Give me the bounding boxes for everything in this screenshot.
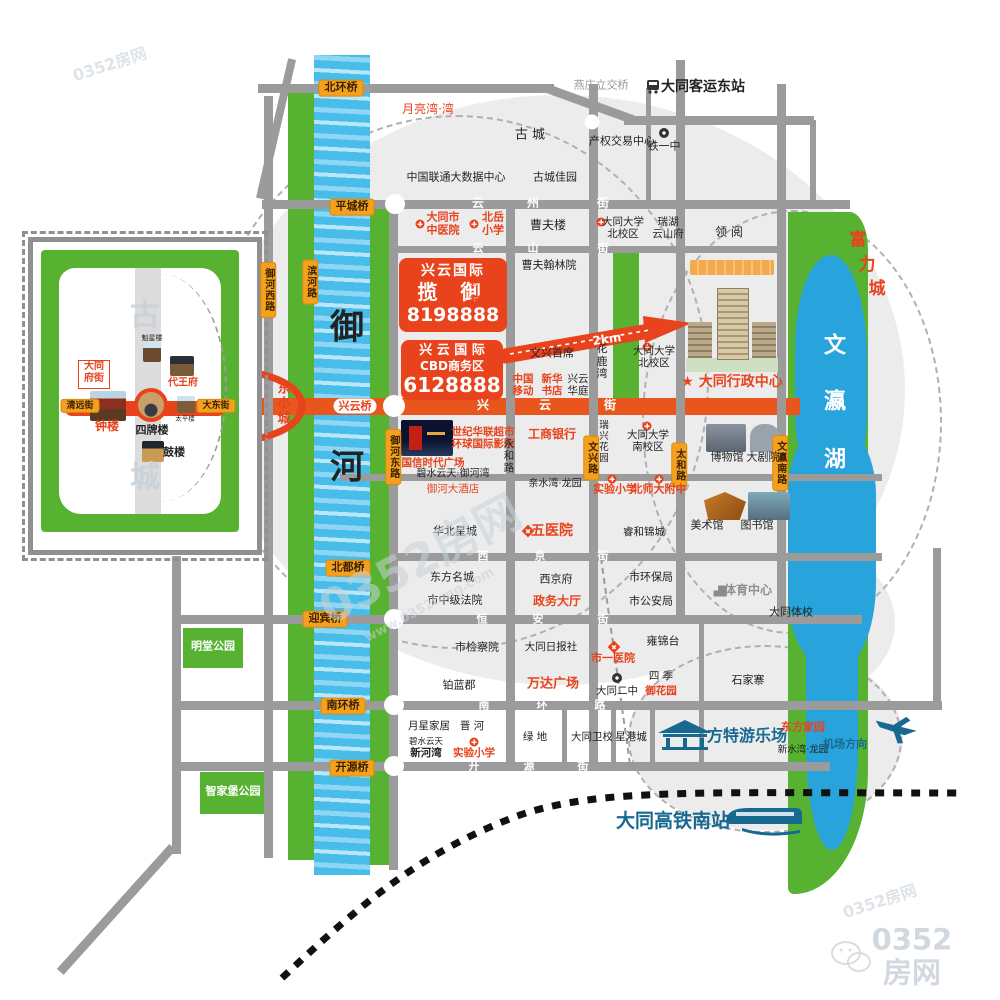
road-binhe: 滨河路 — [302, 260, 318, 305]
label-xinggangcheng: 星港城 — [615, 731, 647, 743]
label-yanzhuang-interchange: 燕庄立交桥 — [574, 80, 629, 93]
label-yueliangwan: 月亮湾·湾 — [402, 103, 454, 117]
label-xinhewan: 新河湾 — [410, 747, 442, 759]
cbd-name: CBD商务区 — [401, 359, 503, 373]
cbd-brand: 兴 云 国 际 — [401, 343, 503, 359]
label-yuhuayuan: 御花园 — [645, 685, 677, 697]
label-china-mobile: 中国 移动 — [513, 373, 534, 397]
label-xijingfu: 西京府 — [540, 574, 573, 587]
map-label: 力 — [859, 256, 876, 276]
label-tcm-hospital: 大同市 中医院 — [427, 211, 460, 236]
label-shijiazhai: 石家寨 — [732, 675, 765, 688]
inset-sipailou: 四牌楼 — [136, 425, 169, 438]
label-wanda-plaza: 万达广场 — [527, 678, 579, 693]
taipinglou-photo — [177, 396, 195, 413]
label-yuhe-down: 河 — [330, 448, 364, 487]
admin-center-photo — [686, 282, 778, 372]
label-dongfangjiayuan: 东方家园 — [781, 722, 825, 735]
map-label: 南 — [479, 700, 490, 713]
label-fangte-park: 方特游乐场 — [707, 727, 787, 745]
map-label: 城 — [130, 461, 160, 496]
map-label: 街 — [598, 614, 609, 627]
road-junction — [384, 695, 404, 715]
label-admin-center: ★ 大同行政中心 — [681, 374, 782, 390]
dark-icon — [659, 128, 669, 138]
kuixinglou-photo — [143, 342, 161, 362]
label-art-gallery: 美术馆 — [691, 520, 724, 533]
label-no2-middle: 大同二中 — [596, 685, 638, 697]
museum-photo — [706, 424, 746, 452]
inset-dadong-street: 大东街 — [196, 399, 235, 413]
map-label: 街 — [578, 761, 589, 774]
label-sports-school: 大同体校 — [769, 607, 813, 620]
label-first-hospital: 市一医院 — [591, 653, 635, 666]
label-qinshuiwan: 亲水湾·龙园 — [528, 478, 581, 490]
label-fifth-hospital: 五医院 — [531, 523, 573, 539]
inset-qingyuan-street: 清远街 — [60, 399, 99, 413]
map-label: 街 — [604, 399, 616, 413]
inset-kuixinglou: 魁星楼 — [142, 334, 163, 342]
map-canvas: 大同 府街 兴云国际 揽 御 8198888 碧水云天 御河苑 兴 云 国 际 … — [0, 0, 1000, 1000]
label-ruixing-garden: 瑞 兴 花 园 — [599, 421, 609, 465]
footer-logo-text: 0352房网 — [868, 924, 956, 991]
label-daily-press: 大同日报社 — [525, 641, 578, 653]
map-label: 瀛 — [824, 389, 846, 414]
label-lvdi: 绿 地 — [523, 731, 547, 743]
cbd-promo-card: 兴 云 国 际 CBD商务区 6128888 — [401, 340, 503, 400]
map-label: 安 — [533, 614, 544, 627]
label-epa: 市环保局 — [629, 572, 673, 585]
bridge-pingchengqiao: 平城桥 — [330, 199, 375, 216]
label-procuratorate: 市检察院 — [455, 642, 499, 655]
label-bishuiyuntian-yuhewan: 碧水云天·御河湾 — [416, 468, 489, 480]
label-hsr-south-station: 大同高铁南站 — [616, 811, 730, 833]
label-east-bus-station: 大同客运东站 — [661, 79, 745, 95]
map-label: 街 — [598, 243, 609, 256]
road-junction — [385, 194, 405, 214]
map-label: 州 — [527, 197, 539, 211]
bridge-nanhuanqiao: 南环桥 — [321, 698, 366, 715]
label-airport-direction: 机场方向 — [823, 739, 867, 752]
label-ruihu-yunshanfu: 瑞湖 云山府 — [652, 216, 684, 240]
label-beiyue-primary: 北岳 小学 — [482, 211, 504, 236]
map-label: 云 — [472, 197, 484, 211]
inset-zhonglou: 钟楼 — [95, 420, 119, 434]
map-label: 湖 — [824, 447, 846, 472]
label-wenxingshouxi: 文兴首席 — [530, 348, 574, 361]
bridge-beihuanqiao: 北环桥 — [319, 80, 364, 97]
label-hualuwan: 花 鹿 湾 — [597, 343, 608, 381]
road-taihe: 太和路 — [671, 443, 687, 488]
label-jinhe: 晋 河 — [460, 720, 484, 732]
map-label: 京 — [535, 551, 546, 564]
road-junction — [585, 115, 600, 130]
label-mingtang-park: 明堂公园 — [191, 641, 235, 654]
label-experimental-primary1: 实验小学 — [593, 484, 637, 497]
inset-gulou: 鼓楼 — [163, 447, 185, 460]
airplane-icon — [872, 712, 918, 746]
label-zhijiabu-park: 智家堡公园 — [206, 786, 261, 799]
label-ruihejincheng: 睿和锦城 — [623, 526, 665, 538]
hospital-icon — [416, 220, 425, 229]
label-gucheng: 古 城 — [515, 129, 545, 144]
map-label: 城 — [869, 280, 886, 300]
label-yuexing-furniture: 月星家居 — [408, 720, 450, 732]
label-xinshuiwan: 新水湾·龙园 — [778, 746, 829, 757]
label-xinhua-bookstore: 新华 书店 — [542, 373, 563, 397]
label-museum: 博物馆 — [711, 452, 744, 465]
hsr-train-icon — [722, 800, 806, 840]
daiwangfu-photo — [170, 356, 194, 376]
label-yongjintai: 雍锦台 — [647, 636, 680, 649]
label-tieyizhong: 铁一中 — [648, 141, 681, 154]
label-xingyunhuating: 兴云 华庭 — [568, 373, 589, 397]
label-caofulou: 曹夫楼 — [530, 219, 566, 233]
map-label: 古 — [130, 299, 160, 334]
label-government-hall: 政务大厅 — [533, 595, 581, 609]
map-label: 街 — [597, 197, 609, 211]
map-label: 环 — [537, 700, 548, 713]
sipailou-photo — [134, 388, 168, 422]
label-beishida: 北师大附中 — [632, 484, 687, 497]
map-label: 开 — [469, 761, 480, 774]
label-sports-center: 体育中心 — [724, 584, 772, 598]
label-experimental-primary2: 实验小学 — [453, 747, 495, 759]
label-dongxiaocheng: 东 小 城 — [277, 383, 290, 428]
label-unicom-datacenter: 中国联通大数据中心 — [407, 172, 506, 185]
label-icbc: 工商银行 — [528, 428, 576, 442]
label-guchengjiayuan: 古城佳园 — [533, 172, 577, 185]
road-wenxing: 文兴路 — [583, 436, 599, 481]
admin-center-banner — [690, 260, 774, 275]
map-label: 富 — [850, 231, 867, 251]
label-wenying-lake: 文 — [824, 333, 846, 358]
map-label: 路 — [595, 700, 606, 713]
inset-fustreet-box: 大同 府街 — [78, 360, 110, 389]
cbd-phone: 6128888 — [401, 373, 503, 397]
label-guoxin-plaza: 国信时代广场 — [402, 457, 465, 469]
label-yuhe-hotel: 御河大酒店 — [427, 483, 480, 495]
inset-daiwangfu: 代王府 — [168, 377, 198, 389]
map-label: 山 — [528, 243, 539, 256]
school-icon — [470, 738, 479, 747]
label-yuhe-up: 御 — [330, 308, 364, 347]
map-label: 云 — [539, 399, 551, 413]
road-yuhe-east: 御河东路 — [385, 429, 401, 485]
label-caofuhanlinyuan: 曹夫翰林院 — [522, 260, 577, 273]
dark-icon — [612, 673, 622, 683]
label-datong-univ-north1: 大同大学 北校区 — [602, 216, 644, 240]
map-label: 兴 — [477, 399, 489, 413]
label-library: 图书馆 — [741, 520, 774, 533]
label-bolanjun: 铂蓝郡 — [443, 680, 476, 693]
label-public-security: 市公安局 — [629, 596, 673, 609]
carousel-icon — [658, 720, 712, 750]
label-xingyun-bridge: 兴云桥 — [334, 399, 377, 414]
map-label: 恒 — [477, 614, 488, 627]
label-yonghe-road: 永 和 路 — [504, 438, 515, 474]
road-yuhe-west: 御河西路 — [260, 262, 276, 318]
label-datong-univ-south: 大同大学 南校区 — [627, 429, 669, 453]
bus-station-icon — [646, 80, 660, 94]
label-health-school: 大同卫校 — [571, 731, 613, 743]
label-lingyue: 领 阅 — [715, 226, 743, 240]
map-label: 源 — [524, 761, 535, 774]
library-photo — [748, 492, 790, 520]
guoxin-plaza-photo — [401, 420, 453, 456]
lanyu-side-label: 碧水云天 御河苑 — [468, 276, 508, 309]
map-label: 街 — [598, 551, 609, 564]
road-junction — [383, 395, 405, 417]
road-junction — [384, 756, 404, 776]
label-datong-univ-north2: 大同大学 北校区 — [633, 345, 675, 369]
map-label: 云 — [473, 243, 484, 256]
inset-taipinglou: 太平楼 — [175, 415, 195, 422]
label-theatre: 大剧院 — [747, 452, 780, 465]
label-siji: 四 季 — [649, 670, 673, 682]
bridge-kaiyuanqiao: 开源桥 — [330, 760, 375, 777]
label-property-exchange: 产权交易中心 — [589, 136, 655, 149]
school-icon — [470, 220, 479, 229]
